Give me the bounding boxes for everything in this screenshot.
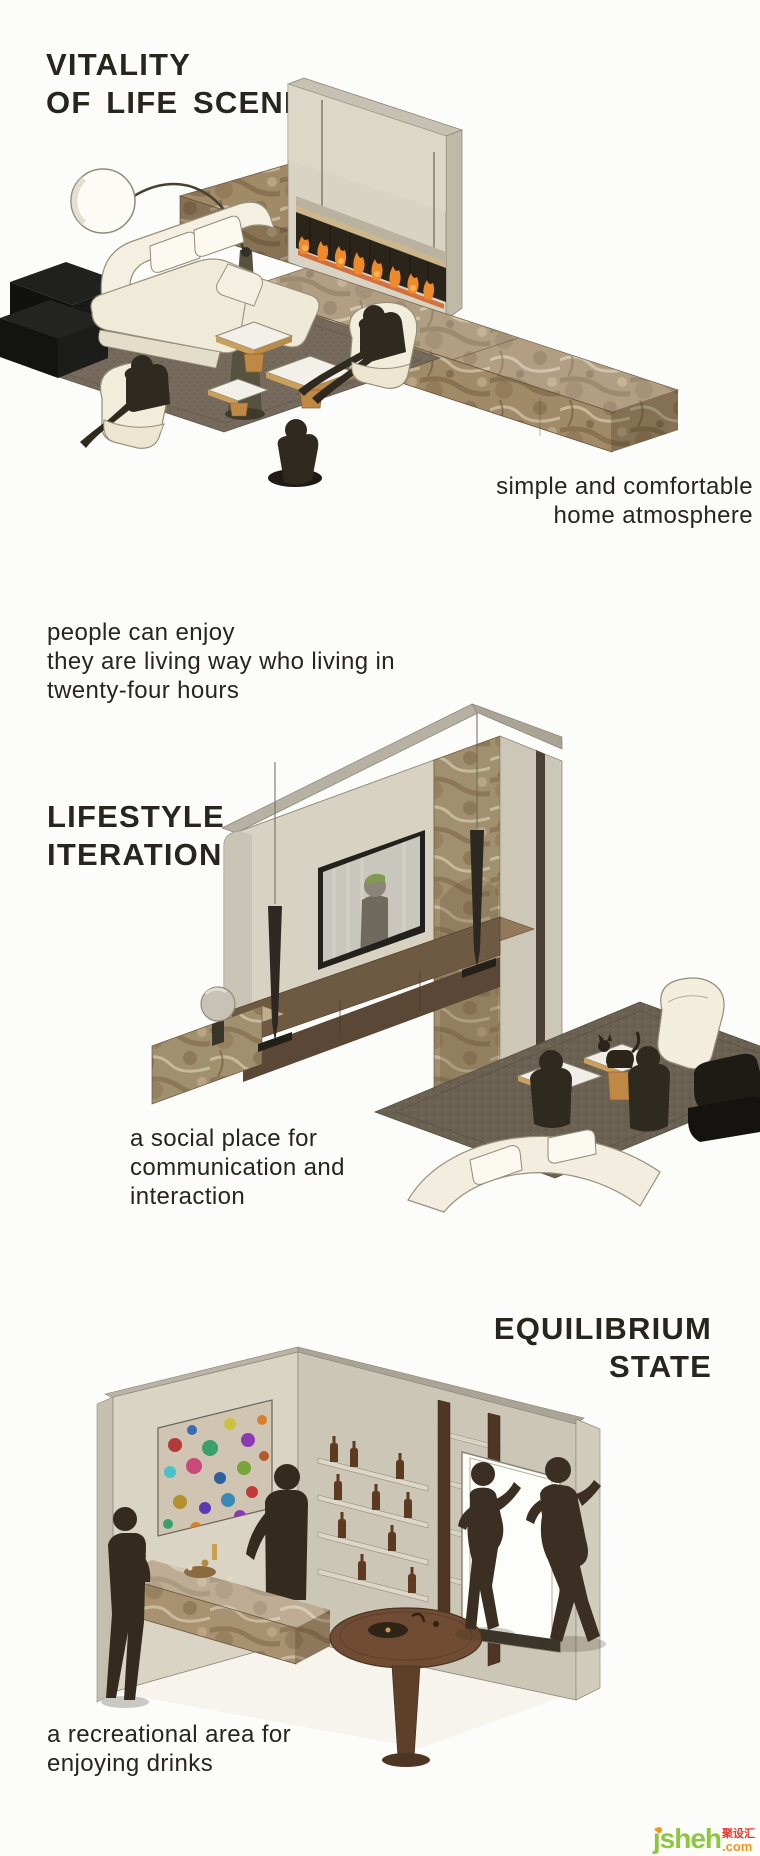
infographic-page: VITALITY OF LIFE SCENE simple and comfor… bbox=[0, 0, 760, 1856]
j-dot-icon bbox=[656, 1827, 662, 1833]
dark-ottomans bbox=[688, 1054, 760, 1142]
home-bar-illustration bbox=[40, 1340, 660, 1772]
intro-line: people can enjoy bbox=[47, 618, 395, 647]
jsheh-tld-text: .com bbox=[722, 1840, 752, 1853]
dark-trim bbox=[536, 750, 545, 1062]
jsheh-watermark: jsheh 聚设汇 .com bbox=[653, 1818, 755, 1854]
brand-label: jsheh bbox=[653, 1823, 721, 1854]
tv-wall-lounge-illustration bbox=[150, 690, 760, 1220]
floor-sitting-person bbox=[268, 419, 322, 487]
jsheh-brand-text: jsheh bbox=[653, 1824, 721, 1854]
return-wall bbox=[500, 736, 562, 1078]
intro-line: they are living way who living in bbox=[47, 647, 395, 676]
fireplace-living-room-illustration bbox=[0, 40, 760, 540]
